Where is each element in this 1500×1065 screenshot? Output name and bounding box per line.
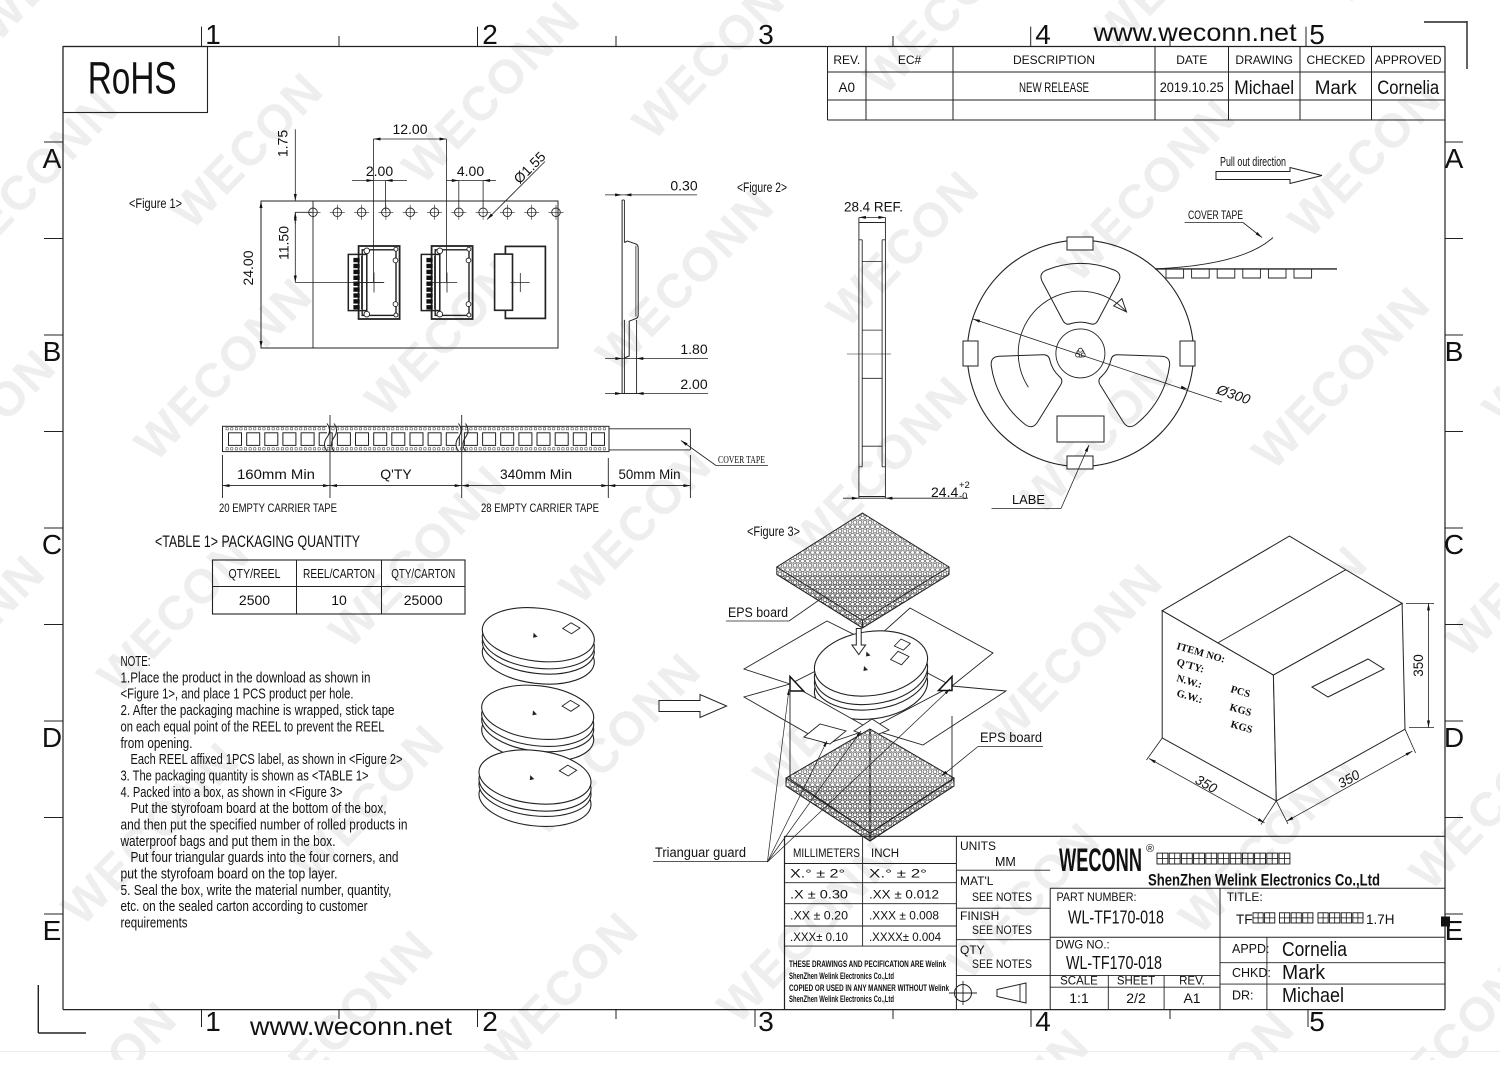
svg-text:WL-TF170-018: WL-TF170-018 <box>1066 953 1162 973</box>
svg-text:put the styrofoam board on the: put the styrofoam board on the top layer… <box>121 866 338 883</box>
svg-text:Put four triangular guards int: Put four triangular guards into the four… <box>131 849 399 866</box>
svg-text:REEL/CARTON: REEL/CARTON <box>303 567 375 581</box>
svg-text:<Figure 2>: <Figure 2> <box>737 179 787 195</box>
svg-text:24.4: 24.4 <box>931 484 958 500</box>
svg-text:11.50: 11.50 <box>276 226 292 260</box>
svg-text:etc. on the sealed carton acco: etc. on the sealed carton according to c… <box>121 898 368 915</box>
svg-text:.XX ± 0.20: .XX ± 0.20 <box>790 909 848 923</box>
svg-text:Mark: Mark <box>1315 78 1357 99</box>
svg-text:1.75: 1.75 <box>275 130 291 157</box>
svg-text:4. Packed into a box, as shown: 4. Packed into a box, as shown in <Figur… <box>121 784 343 801</box>
svg-text:X.° ± 2°: X.° ± 2° <box>790 867 845 881</box>
svg-text:2: 2 <box>482 19 498 50</box>
svg-text:2.00: 2.00 <box>366 163 393 179</box>
svg-text:www.weconn.net: www.weconn.net <box>249 1013 452 1041</box>
svg-text:DRAWING: DRAWING <box>1235 53 1293 67</box>
svg-text:Each REEL affixed 1PCS label,: Each REEL affixed 1PCS label, as shown i… <box>131 751 403 768</box>
svg-text:QTY/REEL: QTY/REEL <box>229 567 281 581</box>
svg-text:28 EMPTY CARRIER TAPE: 28 EMPTY CARRIER TAPE <box>481 503 599 515</box>
svg-text:MM: MM <box>995 855 1016 869</box>
svg-text:WL-TF170-018: WL-TF170-018 <box>1068 908 1164 928</box>
svg-text:2/2: 2/2 <box>1126 990 1146 1006</box>
svg-text:ShenZhen Welink Electronics Co: ShenZhen Welink Electronics Co.,Ltd <box>789 994 894 1004</box>
svg-text:DR:: DR: <box>1232 989 1254 1003</box>
svg-text:25000: 25000 <box>404 592 443 608</box>
svg-text:10: 10 <box>331 592 347 608</box>
svg-text:1:1: 1:1 <box>1069 990 1089 1006</box>
svg-text:B: B <box>43 336 62 367</box>
svg-text:ShenZhen Welink Electronics Co: ShenZhen Welink Electronics Co.,Ltd <box>789 971 894 981</box>
svg-text:.X ± 0.30: .X ± 0.30 <box>790 888 848 902</box>
svg-text:2019.10.25: 2019.10.25 <box>1160 79 1224 95</box>
svg-text:1: 1 <box>205 1006 221 1037</box>
svg-text:MAT'L: MAT'L <box>960 874 994 888</box>
svg-text:from opening.: from opening. <box>121 735 193 752</box>
svg-text:PART NUMBER:: PART NUMBER: <box>1057 890 1137 904</box>
svg-text:EPS board: EPS board <box>728 605 788 620</box>
svg-text:X.° ± 2°: X.° ± 2° <box>869 867 927 881</box>
svg-text:RoHS: RoHS <box>88 53 177 104</box>
svg-text:+2: +2 <box>959 480 970 491</box>
svg-text:340mm Min: 340mm Min <box>500 466 572 482</box>
svg-text:50mm Min: 50mm Min <box>619 466 681 482</box>
svg-text:NEW RELEASE: NEW RELEASE <box>1019 80 1089 95</box>
svg-text:20 EMPTY CARRIER TAPE: 20 EMPTY CARRIER TAPE <box>219 503 337 515</box>
svg-text:-0: -0 <box>959 491 967 502</box>
svg-text:D: D <box>42 722 62 753</box>
svg-text:on each equal point of the REE: on each equal point of the REEL to preve… <box>121 718 385 735</box>
svg-text:SCALE: SCALE <box>1060 976 1098 988</box>
svg-text:Pull out direction: Pull out direction <box>1220 155 1286 169</box>
svg-text:ShenZhen Welink Electronics Co: ShenZhen Welink Electronics Co.,Ltd <box>1148 871 1380 890</box>
svg-text:Put the styrofoam board at the: Put the styrofoam board at the bottom of… <box>131 800 387 817</box>
svg-text:350: 350 <box>1411 654 1426 677</box>
svg-text:waterproof bags and put them i: waterproof bags and put them in the box. <box>120 833 336 850</box>
svg-text:3: 3 <box>758 19 774 50</box>
svg-text:QTY: QTY <box>960 943 985 957</box>
svg-text:4: 4 <box>1035 1006 1051 1037</box>
svg-text:<TABLE 1> PACKAGING QUANTITY: <TABLE 1> PACKAGING QUANTITY <box>155 533 360 551</box>
svg-text:.XXX ± 0.008: .XXX ± 0.008 <box>869 909 939 923</box>
svg-text:2. After the packaging machine: 2. After the packaging machine is wrappe… <box>121 702 395 719</box>
svg-text:EPS board: EPS board <box>980 730 1042 745</box>
svg-text:APPROVED: APPROVED <box>1375 53 1442 67</box>
svg-text:Trianguar guard: Trianguar guard <box>655 845 746 860</box>
svg-text:C: C <box>1444 529 1464 560</box>
svg-text:A1: A1 <box>1183 990 1200 1006</box>
svg-text:1: 1 <box>205 19 221 50</box>
svg-text:Michael: Michael <box>1234 78 1294 99</box>
svg-text:5: 5 <box>1309 19 1325 50</box>
svg-text:1.80: 1.80 <box>680 341 707 357</box>
svg-text:requirements: requirements <box>121 915 188 932</box>
svg-text:A: A <box>1445 143 1464 174</box>
svg-text:and then put the specified num: and then put the specified number of rol… <box>121 817 408 834</box>
svg-text:INCH: INCH <box>871 848 899 860</box>
svg-text:REV.: REV. <box>1179 976 1205 988</box>
svg-text:Michael: Michael <box>1282 985 1344 1007</box>
svg-text:MILLIMETERS: MILLIMETERS <box>793 848 860 860</box>
svg-text:FINISH: FINISH <box>960 909 999 923</box>
svg-text:.XXX± 0.10: .XXX± 0.10 <box>790 930 848 944</box>
svg-text:C: C <box>42 529 62 560</box>
svg-text:4.00: 4.00 <box>457 163 484 179</box>
svg-text:B: B <box>1445 336 1464 367</box>
svg-text:A: A <box>43 143 62 174</box>
svg-text:WECONN: WECONN <box>1059 842 1142 878</box>
svg-text:DESCRIPTION: DESCRIPTION <box>1013 53 1095 67</box>
svg-text:REV.: REV. <box>833 53 860 67</box>
svg-text:12.00: 12.00 <box>392 121 427 137</box>
svg-text:Mark: Mark <box>1282 962 1326 984</box>
svg-text:UNITS: UNITS <box>960 839 996 853</box>
svg-text:1.7H: 1.7H <box>1366 912 1395 927</box>
svg-text:Cornelia: Cornelia <box>1282 939 1348 961</box>
svg-text:28.4 REF.: 28.4 REF. <box>844 199 903 215</box>
svg-text:SEE NOTES: SEE NOTES <box>972 890 1032 904</box>
svg-text:NOTE:: NOTE: <box>121 653 151 670</box>
svg-text:SHEET: SHEET <box>1117 976 1155 988</box>
svg-text:<Figure 3>: <Figure 3> <box>747 523 800 539</box>
svg-text:2: 2 <box>482 1006 498 1037</box>
svg-text:.XX ± 0.012: .XX ± 0.012 <box>869 888 939 902</box>
svg-text:3. The packaging quantity is s: 3. The packaging quantity is shown as <T… <box>121 768 369 785</box>
svg-text:COVER TAPE: COVER TAPE <box>718 455 765 466</box>
svg-text:24.00: 24.00 <box>240 250 256 285</box>
svg-text:<Figure 1>, and place 1 PCS pr: <Figure 1>, and place 1 PCS product per … <box>121 686 354 703</box>
svg-text:COPIED OR USED IN ANY MANNER W: COPIED OR USED IN ANY MANNER WITHOUT Wel… <box>789 983 950 993</box>
svg-text:TITLE:: TITLE: <box>1227 890 1263 904</box>
svg-text:CHECKED: CHECKED <box>1306 53 1365 67</box>
svg-text:EC#: EC# <box>898 53 922 67</box>
svg-text:®: ® <box>1146 843 1154 855</box>
svg-text:.XXXX± 0.004: .XXXX± 0.004 <box>869 930 941 944</box>
svg-text:DATE: DATE <box>1176 53 1207 67</box>
svg-text:4: 4 <box>1035 19 1051 50</box>
svg-text:Cornelia: Cornelia <box>1377 78 1439 99</box>
svg-text:2500: 2500 <box>239 592 270 608</box>
svg-text:QTY/CARTON: QTY/CARTON <box>391 567 455 581</box>
svg-text:Q'TY: Q'TY <box>380 466 412 482</box>
svg-text:DWG NO.:: DWG NO.: <box>1056 938 1110 952</box>
svg-text:SEE NOTES: SEE NOTES <box>972 957 1032 971</box>
svg-text:LABE: LABE <box>1012 493 1045 507</box>
svg-text:1.Place the product in the dow: 1.Place the product in the download as s… <box>121 669 371 686</box>
svg-text:SEE NOTES: SEE NOTES <box>972 923 1032 937</box>
svg-text:5: 5 <box>1309 1006 1325 1037</box>
svg-text:THESE DRAWINGS AND PECIFICATIO: THESE DRAWINGS AND PECIFICATION ARE Weli… <box>789 959 947 969</box>
svg-text:CHKD:: CHKD: <box>1232 966 1271 980</box>
svg-text:TF: TF <box>1236 912 1253 927</box>
svg-text:APPD:: APPD: <box>1232 942 1270 956</box>
svg-text:2.00: 2.00 <box>680 376 707 392</box>
svg-text:5. Seal the box, write the mat: 5. Seal the box, write the material numb… <box>121 882 392 899</box>
svg-text:D: D <box>1444 722 1464 753</box>
svg-text:www.weconn.net: www.weconn.net <box>1093 19 1297 47</box>
svg-text:E: E <box>43 915 62 946</box>
svg-text:160mm Min: 160mm Min <box>237 466 315 482</box>
svg-text:<Figure 1>: <Figure 1> <box>129 195 182 211</box>
svg-text:0.30: 0.30 <box>670 178 697 194</box>
svg-text:3: 3 <box>758 1006 774 1037</box>
svg-text:COVER TAPE: COVER TAPE <box>1188 208 1243 222</box>
svg-text:A0: A0 <box>838 80 855 95</box>
